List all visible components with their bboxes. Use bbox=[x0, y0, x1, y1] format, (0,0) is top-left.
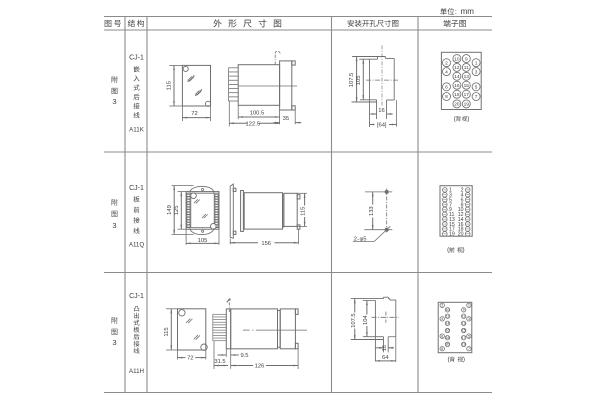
svg-text:115: 115 bbox=[301, 207, 307, 216]
svg-text:15: 15 bbox=[462, 329, 466, 333]
svg-text:7: 7 bbox=[475, 94, 478, 100]
svg-text:125: 125 bbox=[174, 206, 180, 216]
svg-text:20: 20 bbox=[446, 343, 450, 347]
svg-text:12: 12 bbox=[454, 65, 460, 71]
svg-text:10: 10 bbox=[454, 56, 460, 62]
svg-text:mm: mm bbox=[461, 7, 475, 16]
svg-text:φ5: φ5 bbox=[360, 236, 367, 242]
svg-text:4: 4 bbox=[441, 317, 443, 321]
svg-text:19: 19 bbox=[449, 232, 455, 238]
svg-text:133: 133 bbox=[369, 206, 375, 216]
svg-text:15: 15 bbox=[464, 83, 470, 89]
svg-text:18: 18 bbox=[454, 92, 460, 98]
svg-text:7: 7 bbox=[468, 347, 470, 351]
svg-text:6: 6 bbox=[441, 334, 443, 338]
svg-text:16: 16 bbox=[378, 108, 384, 114]
svg-text:2: 2 bbox=[445, 60, 448, 66]
svg-text:115: 115 bbox=[164, 327, 170, 336]
svg-text:A11H: A11H bbox=[129, 368, 144, 375]
svg-text:2-: 2- bbox=[354, 236, 359, 242]
svg-text::: : bbox=[455, 9, 457, 16]
svg-text:35: 35 bbox=[283, 116, 289, 122]
svg-text:17: 17 bbox=[464, 92, 470, 98]
svg-text:3: 3 bbox=[475, 69, 478, 75]
svg-text:3: 3 bbox=[112, 97, 116, 106]
svg-text:8: 8 bbox=[445, 94, 448, 100]
svg-text:16: 16 bbox=[446, 329, 450, 333]
svg-text:11: 11 bbox=[464, 65, 469, 71]
svg-text:20: 20 bbox=[454, 102, 460, 108]
svg-text:): ) bbox=[463, 247, 465, 254]
svg-text:CJ-1: CJ-1 bbox=[129, 293, 144, 300]
svg-text:13: 13 bbox=[462, 322, 466, 326]
svg-text:64: 64 bbox=[382, 355, 389, 361]
svg-text:19: 19 bbox=[464, 102, 470, 108]
svg-text:12: 12 bbox=[446, 314, 450, 318]
svg-text:8: 8 bbox=[441, 347, 443, 351]
svg-text:1: 1 bbox=[468, 304, 470, 308]
svg-text:5: 5 bbox=[468, 334, 470, 338]
svg-text:3: 3 bbox=[468, 317, 470, 321]
svg-text:): ) bbox=[467, 115, 469, 122]
svg-text:104: 104 bbox=[363, 315, 369, 325]
svg-text:16: 16 bbox=[382, 345, 388, 351]
svg-text:A11K: A11K bbox=[129, 127, 145, 134]
svg-text:CJ-1: CJ-1 bbox=[129, 54, 144, 61]
svg-text:A11Q: A11Q bbox=[129, 242, 145, 249]
svg-text:6: 6 bbox=[445, 85, 448, 91]
svg-text:31.5: 31.5 bbox=[214, 359, 225, 365]
svg-text:CJ-1: CJ-1 bbox=[129, 185, 144, 192]
svg-text:20: 20 bbox=[458, 232, 464, 238]
svg-text:3: 3 bbox=[112, 221, 116, 230]
svg-text:115: 115 bbox=[167, 81, 173, 90]
svg-text:4: 4 bbox=[445, 69, 448, 75]
svg-text:5: 5 bbox=[475, 85, 478, 91]
svg-text:2: 2 bbox=[441, 304, 443, 308]
svg-text:): ) bbox=[463, 356, 465, 363]
svg-text:72: 72 bbox=[191, 111, 197, 117]
svg-text:72: 72 bbox=[187, 356, 193, 362]
svg-text:14: 14 bbox=[446, 322, 450, 326]
svg-text:107.5: 107.5 bbox=[349, 73, 355, 88]
svg-text:126: 126 bbox=[255, 364, 265, 370]
svg-text:149: 149 bbox=[167, 205, 173, 215]
svg-text:156: 156 bbox=[261, 241, 271, 247]
svg-text:3: 3 bbox=[112, 338, 116, 347]
svg-text:9: 9 bbox=[465, 56, 468, 62]
svg-text:107.5: 107.5 bbox=[351, 313, 357, 328]
svg-text:18: 18 bbox=[446, 336, 450, 340]
svg-text:1: 1 bbox=[475, 60, 478, 66]
svg-text:10: 10 bbox=[446, 308, 450, 312]
svg-text:105: 105 bbox=[356, 76, 362, 86]
svg-text:19: 19 bbox=[462, 343, 466, 347]
svg-text:14: 14 bbox=[454, 74, 460, 80]
svg-text:100.5: 100.5 bbox=[250, 111, 265, 117]
svg-text:11: 11 bbox=[462, 314, 466, 318]
svg-text:17: 17 bbox=[462, 336, 466, 340]
svg-text:13: 13 bbox=[464, 74, 470, 80]
svg-text:9: 9 bbox=[463, 308, 465, 312]
svg-text:9.5: 9.5 bbox=[240, 353, 248, 359]
svg-text:[64]: [64] bbox=[377, 123, 387, 129]
svg-text:16: 16 bbox=[454, 83, 460, 89]
svg-text:122.5: 122.5 bbox=[246, 122, 261, 128]
svg-text:105: 105 bbox=[198, 238, 208, 244]
